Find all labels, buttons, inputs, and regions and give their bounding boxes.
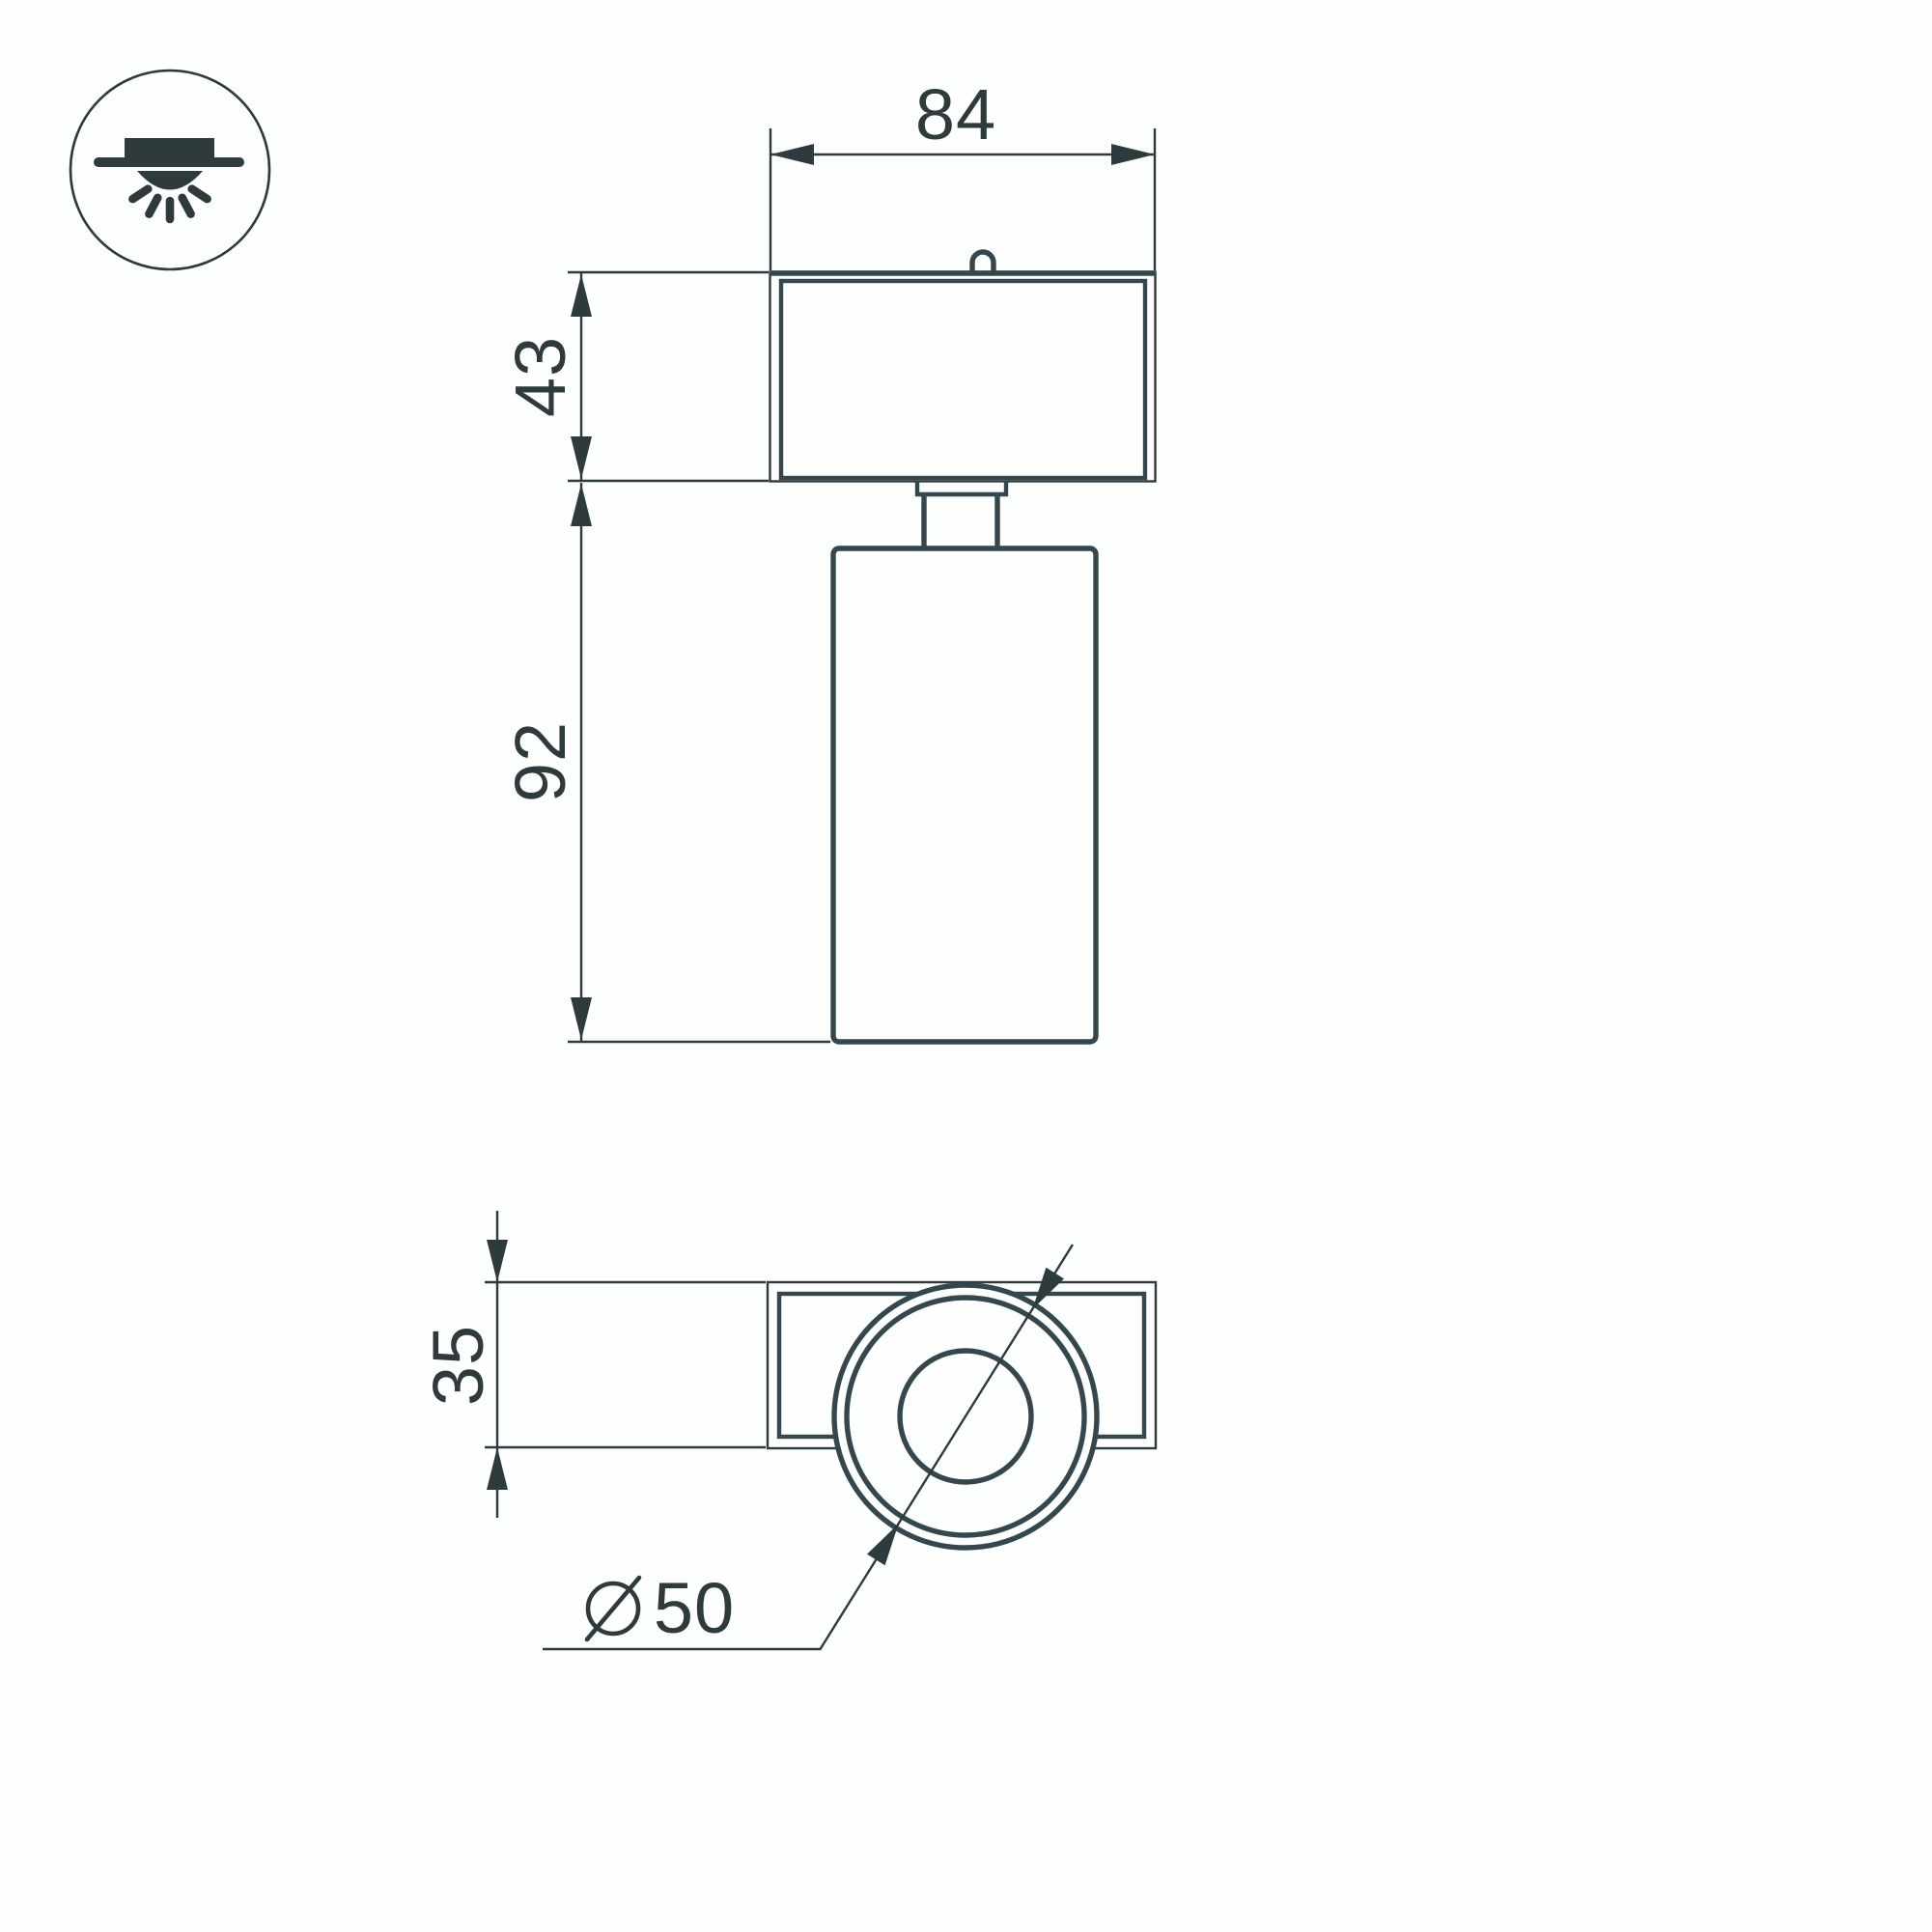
bottom-view bbox=[768, 1282, 1156, 1548]
arrowhead bbox=[487, 1447, 508, 1490]
icon-ceiling-bar bbox=[94, 157, 244, 167]
dimension-base-depth: 35 bbox=[418, 1211, 766, 1518]
icon-circle bbox=[70, 70, 269, 269]
cylinder-body bbox=[833, 548, 1096, 1042]
arrowhead bbox=[770, 144, 814, 165]
arrowhead bbox=[571, 274, 592, 317]
front-view bbox=[770, 252, 1156, 1042]
swivel-collar bbox=[917, 482, 1006, 494]
diameter-symbol bbox=[587, 1578, 639, 1639]
drawing-canvas: 84 43 92 35 bbox=[0, 0, 1932, 1932]
dimension-label-head-height: 43 bbox=[500, 336, 580, 417]
technical-drawing: 84 43 92 35 bbox=[0, 0, 1932, 1932]
dimension-label-body-height: 92 bbox=[500, 721, 580, 802]
dimension-head-height: 43 bbox=[500, 272, 769, 481]
arrowhead bbox=[867, 1524, 899, 1565]
icon-light-rays bbox=[132, 189, 207, 219]
arrowhead bbox=[571, 484, 592, 526]
dimension-label-base-depth: 35 bbox=[418, 1325, 498, 1406]
dimension-body-height: 92 bbox=[500, 483, 830, 1042]
arrowhead bbox=[1032, 1268, 1064, 1309]
dimension-label-lens-diameter: 50 bbox=[654, 1568, 735, 1648]
dimension-label-width: 84 bbox=[915, 74, 996, 154]
arrowhead bbox=[1111, 144, 1155, 165]
arrowhead bbox=[571, 436, 592, 479]
icon-mount-box bbox=[125, 138, 214, 159]
dimension-width: 84 bbox=[770, 74, 1155, 270]
housing-inner bbox=[781, 281, 1145, 478]
surface-mounted-downlight-icon bbox=[70, 70, 269, 269]
housing-outer bbox=[770, 272, 1156, 482]
neck bbox=[924, 494, 997, 548]
arrowhead bbox=[487, 1240, 508, 1282]
arrowhead bbox=[571, 997, 592, 1040]
